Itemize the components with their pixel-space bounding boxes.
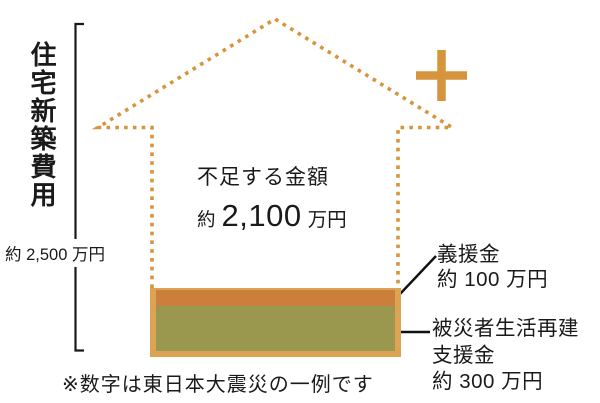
shienkin-label-line1: 被災者生活再建	[432, 316, 579, 343]
total-cost-label: 約 2,500 万円	[2, 239, 108, 267]
shienkin-amount: 約 300 万円	[432, 369, 579, 396]
plus-icon	[416, 50, 467, 101]
gienkin-label-block: 義援金 約 100 万円	[437, 242, 548, 292]
gienkin-bar-segment	[156, 290, 395, 306]
shienkin-label-block: 被災者生活再建 支援金 約 300 万円	[432, 316, 579, 396]
gienkin-amount: 約 100 万円	[437, 267, 548, 292]
gienkin-label: 義援金	[437, 242, 548, 267]
gienkin-connector-line	[400, 256, 436, 294]
shortfall-title: 不足する金額	[197, 161, 347, 191]
shortfall-amount-value: 2,100	[222, 198, 302, 234]
vertical-axis-title: 住宅新築費用	[29, 41, 55, 221]
funds-bar	[150, 288, 401, 357]
shortfall-amount-prefix: 約	[197, 206, 216, 232]
shienkin-label-line2: 支援金	[432, 343, 579, 370]
housing-cost-infographic: 住宅新築費用 約 2,500 万円 不足する金額 約 2,100 万円 義援金 …	[0, 0, 600, 403]
shortfall-amount: 約 2,100 万円	[197, 198, 347, 234]
shienkin-bar-segment	[156, 306, 395, 351]
house-outline-dotted	[98, 19, 452, 288]
shortfall-block: 不足する金額 約 2,100 万円	[197, 161, 347, 234]
total-bracket	[76, 24, 85, 351]
shortfall-amount-unit: 万円	[308, 203, 347, 232]
footnote: ※数字は東日本大震災の一例です	[62, 368, 374, 397]
